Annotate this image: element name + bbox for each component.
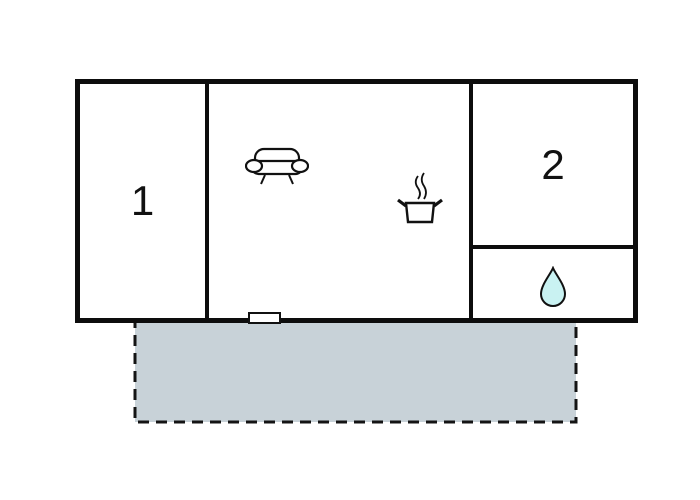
sofa-icon — [245, 146, 309, 188]
room-2-label: 2 — [541, 144, 564, 186]
room-1: 1 — [80, 84, 205, 318]
bathroom-divider-wall — [469, 245, 633, 249]
room-1-label: 1 — [131, 180, 154, 222]
water-drop-icon — [539, 266, 567, 308]
water-drop-shape — [541, 268, 565, 306]
interior-wall-left — [205, 84, 209, 318]
room-2: 2 — [473, 84, 633, 245]
entrance-marker — [248, 312, 281, 324]
building-outline: 1 2 — [75, 79, 638, 323]
building-interior: 1 2 — [80, 84, 633, 318]
terrace — [133, 316, 579, 426]
cooking-pot-icon — [395, 170, 447, 226]
terrace-area — [135, 318, 576, 422]
floor-plan-canvas: 1 2 — [0, 0, 700, 500]
